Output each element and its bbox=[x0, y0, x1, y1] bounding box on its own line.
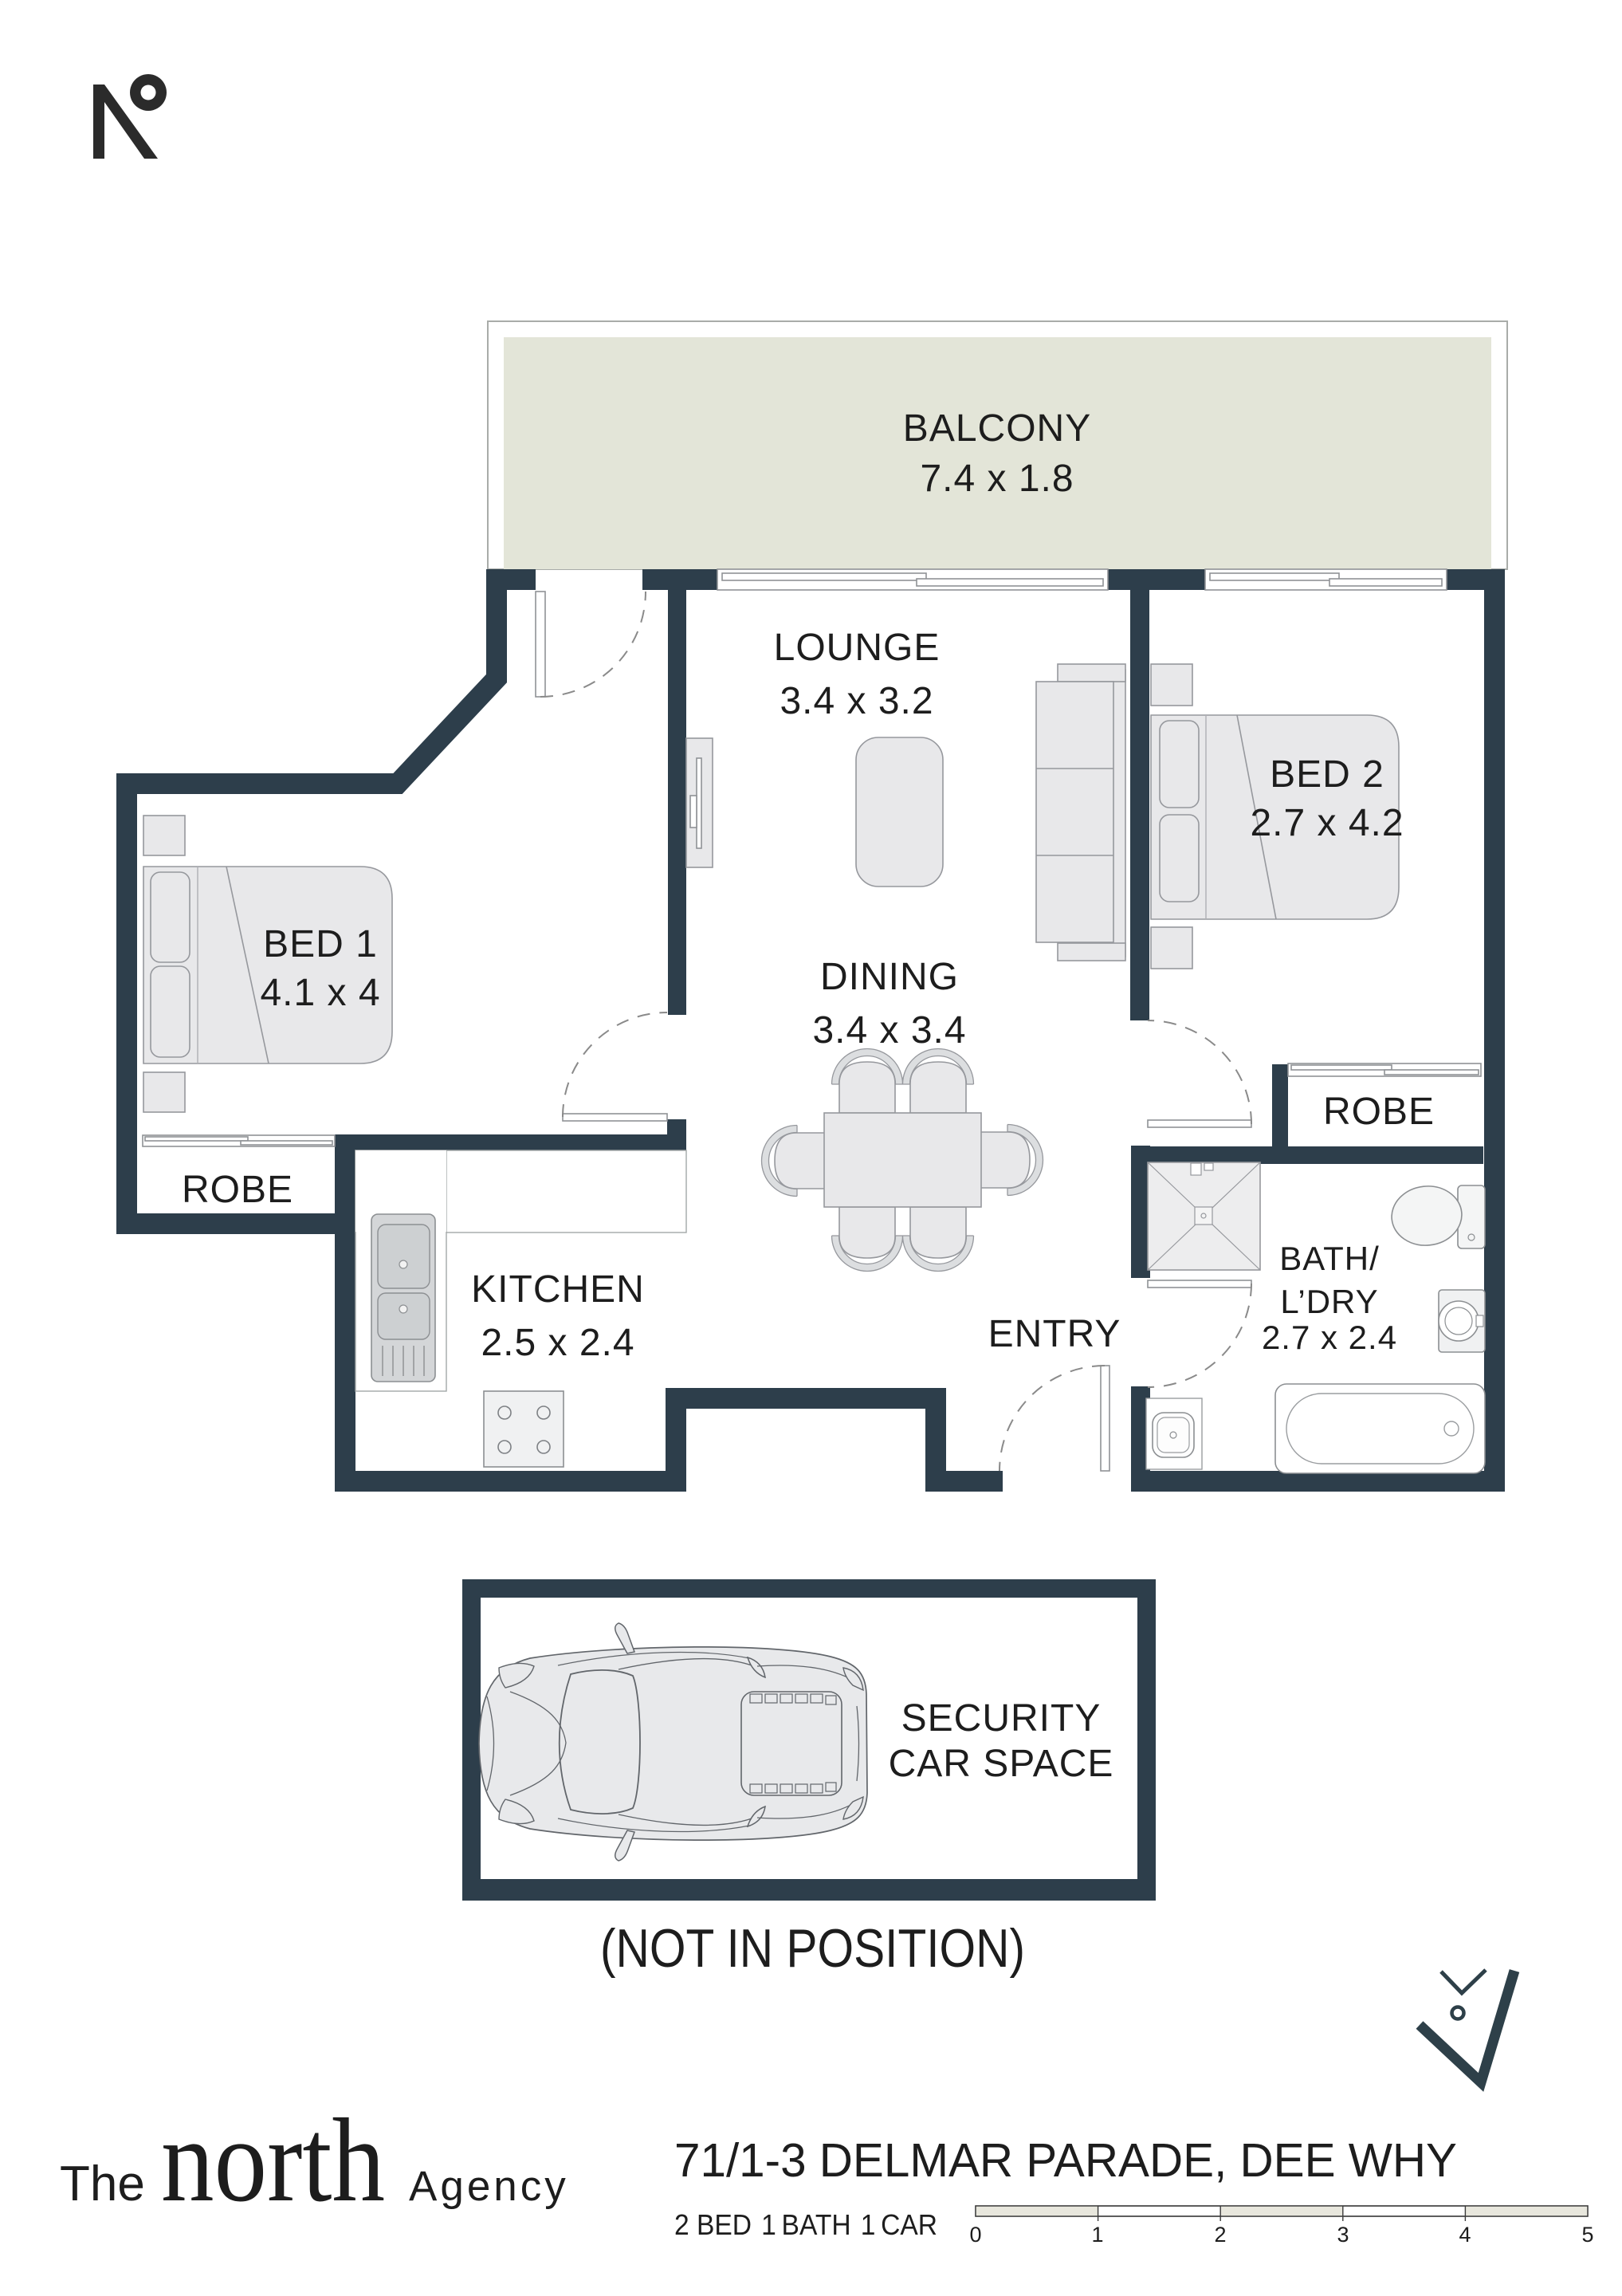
svg-text:(NOT IN POSITION): (NOT IN POSITION) bbox=[600, 1918, 1025, 1979]
svg-text:DINING: DINING bbox=[820, 956, 959, 998]
svg-text:7.4 x 1.8: 7.4 x 1.8 bbox=[920, 458, 1074, 500]
svg-text:3.4 x 3.4: 3.4 x 3.4 bbox=[812, 1009, 966, 1052]
svg-text:5: 5 bbox=[1581, 2223, 1593, 2247]
svg-text:2 BED 1 BATH 1 CAR: 2 BED 1 BATH 1 CAR bbox=[674, 2208, 937, 2241]
svg-text:2: 2 bbox=[1214, 2223, 1226, 2247]
svg-text:3: 3 bbox=[1337, 2223, 1349, 2247]
svg-text:BATH/: BATH/ bbox=[1279, 1240, 1380, 1277]
svg-text:2.5 x 2.4: 2.5 x 2.4 bbox=[481, 1322, 634, 1364]
svg-text:Agency: Agency bbox=[409, 2163, 569, 2210]
svg-text:4: 4 bbox=[1459, 2223, 1471, 2247]
svg-text:The: The bbox=[60, 2156, 145, 2211]
svg-text:0: 0 bbox=[969, 2223, 981, 2247]
svg-text:BALCONY: BALCONY bbox=[903, 407, 1091, 450]
svg-text:4.1 x 4: 4.1 x 4 bbox=[260, 972, 380, 1014]
svg-text:ROBE: ROBE bbox=[182, 1169, 293, 1211]
svg-text:LOUNGE: LOUNGE bbox=[774, 627, 941, 669]
svg-text:BED 2: BED 2 bbox=[1270, 753, 1384, 796]
svg-text:2.7 x 2.4: 2.7 x 2.4 bbox=[1262, 1319, 1397, 1356]
svg-text:KITCHEN: KITCHEN bbox=[471, 1268, 645, 1311]
svg-text:1: 1 bbox=[1091, 2223, 1103, 2247]
svg-text:ROBE: ROBE bbox=[1323, 1091, 1435, 1133]
svg-text:71/1-3 DELMAR PARADE, DEE WHY: 71/1-3 DELMAR PARADE, DEE WHY bbox=[674, 2134, 1457, 2187]
svg-text:BED 1: BED 1 bbox=[263, 923, 378, 965]
svg-text:ENTRY: ENTRY bbox=[988, 1313, 1121, 1355]
svg-text:3.4 x 3.2: 3.4 x 3.2 bbox=[780, 680, 933, 722]
svg-text:north: north bbox=[161, 2094, 385, 2227]
svg-text:L’DRY: L’DRY bbox=[1280, 1283, 1378, 1320]
svg-text:SECURITY: SECURITY bbox=[901, 1697, 1102, 1740]
svg-text:CAR SPACE: CAR SPACE bbox=[889, 1743, 1114, 1785]
svg-text:2.7 x 4.2: 2.7 x 4.2 bbox=[1250, 802, 1404, 844]
